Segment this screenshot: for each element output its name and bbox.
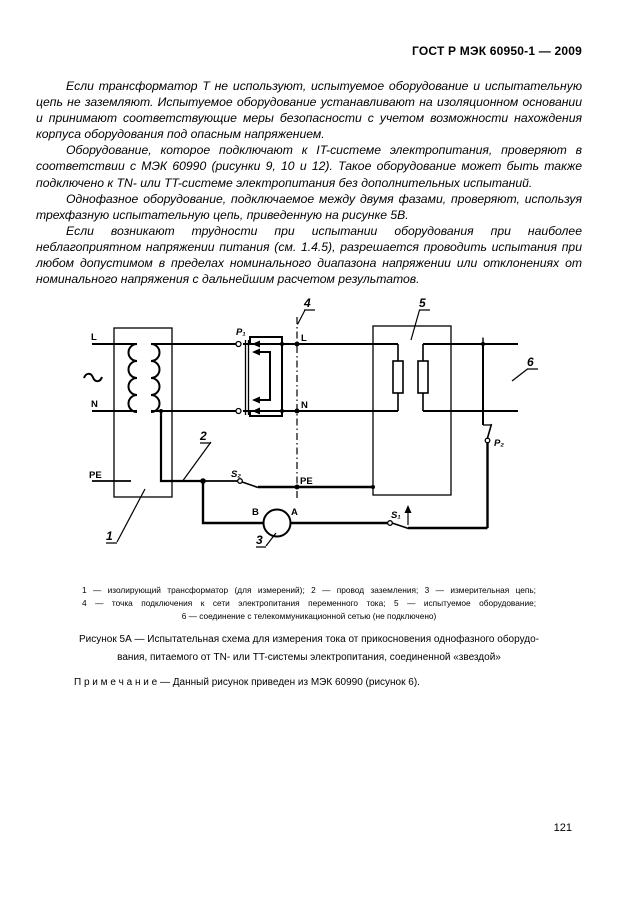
earth-wire — [161, 411, 203, 481]
legend-line-3: 6 — соединение с телекоммуникационной се… — [36, 610, 582, 623]
transformer-box — [114, 328, 172, 497]
paragraph-1: Если трансформатор Т не используют, испы… — [36, 78, 582, 142]
measuring-device — [264, 510, 291, 537]
test-circuit-diagram: L N PE P₁ L N PE S₂ B A S₁ P₂ 1 2 3 4 5 … — [70, 292, 570, 588]
paragraph-3: Однофазное оборудование, подключаемое ме… — [36, 191, 582, 223]
p2-blade — [488, 424, 492, 438]
legend-line-2: 4 — точка подключения к сети электропита… — [36, 597, 582, 610]
eut-impedance-left — [393, 361, 403, 393]
body-text: Если трансформатор Т не используют, испы… — [36, 78, 582, 287]
caption-line-2: вания, питаемого от TN- или TT-системы э… — [36, 649, 582, 667]
figure-caption: Рисунок 5А — Испытательная схема для изм… — [36, 631, 582, 667]
s1-terminal — [388, 521, 393, 526]
callout-5: 5 — [419, 296, 426, 310]
p2-terminal — [485, 438, 490, 443]
pin-arrow-e2 — [252, 397, 260, 404]
label-p1: P₁ — [236, 327, 246, 338]
figure-legend: 1 — изолирующий трансформатор (для измер… — [36, 584, 582, 623]
label-b: B — [252, 507, 259, 518]
callout-4: 4 — [303, 296, 311, 310]
label-s2: S₂ — [231, 469, 241, 480]
plug-earth-pin — [254, 352, 270, 400]
eut-impedance-right — [418, 361, 428, 393]
callout-leaders — [106, 310, 538, 547]
paragraph-4: Если возникают трудности при испытании о… — [36, 223, 582, 287]
label-n-left: N — [91, 399, 98, 410]
label-pe-left: PE — [89, 470, 102, 481]
callout-3: 3 — [256, 533, 263, 547]
figure-note: П р и м е ч а н и е — Данный рисунок при… — [74, 676, 574, 690]
junction-dot — [159, 409, 163, 413]
label-l-left: L — [91, 332, 97, 343]
s1-blade — [392, 523, 409, 529]
label-pe-right: PE — [300, 476, 313, 487]
secondary-winding — [151, 344, 160, 412]
label-l-right: L — [301, 333, 307, 344]
paragraph-2: Оборудование, которое подключают к IT-си… — [36, 142, 582, 190]
legend-line-1: 1 — изолирующий трансформатор (для измер… — [36, 584, 582, 597]
junction-dot — [371, 485, 375, 489]
primary-winding — [129, 344, 138, 412]
label-p2: P₂ — [494, 438, 504, 449]
callout-1: 1 — [106, 529, 113, 543]
s1-arrow-head — [405, 505, 412, 513]
callout-6: 6 — [527, 355, 534, 369]
document-page: ГОСТ Р МЭК 60950-1 — 2009 Если трансформ… — [0, 0, 630, 913]
pin-arrow-l — [252, 341, 260, 348]
doc-number-header: ГОСТ Р МЭК 60950-1 — 2009 — [412, 44, 582, 58]
s2-blade — [242, 482, 258, 488]
pin-arrow-n — [252, 408, 260, 415]
socket-terminal-l — [236, 342, 241, 347]
socket-face — [246, 340, 249, 415]
label-s1: S₁ — [391, 510, 401, 521]
page-number: 121 — [554, 822, 572, 834]
label-a: A — [291, 507, 298, 518]
callout-2: 2 — [199, 429, 207, 443]
ac-symbol — [84, 374, 102, 381]
socket-terminal-n — [236, 409, 241, 414]
caption-line-1: Рисунок 5А — Испытательная схема для изм… — [36, 631, 582, 649]
plug-bracket — [250, 337, 282, 416]
pin-arrow-e1 — [252, 349, 260, 356]
label-n-right: N — [301, 400, 308, 411]
